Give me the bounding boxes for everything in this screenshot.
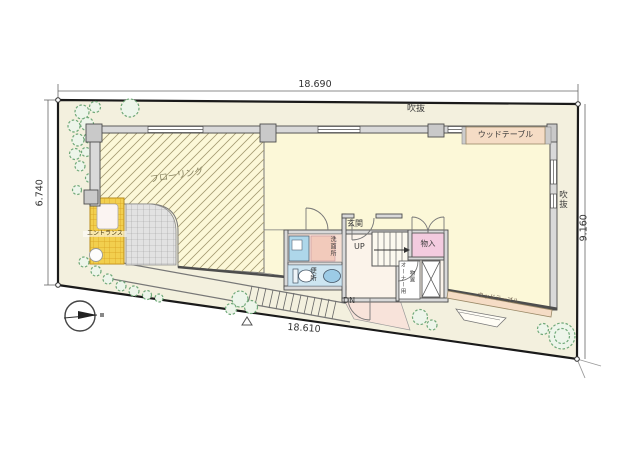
toilet-label: 便所 xyxy=(309,267,316,282)
stairs-up-label: UP xyxy=(354,243,365,251)
entrance-porch-label: エントランス xyxy=(83,231,127,237)
washroom-label: 洗面所 xyxy=(329,236,335,257)
wood-table-top-label: ウッドテーブル xyxy=(466,131,545,139)
stairs-down-label: DN xyxy=(343,297,355,305)
closet-label: 物入 xyxy=(412,240,444,248)
north-arrow-icon xyxy=(64,301,104,331)
basin xyxy=(324,270,341,283)
entrance-hall-label: 玄関 xyxy=(340,220,370,228)
dimension-top: 18.690 xyxy=(260,80,370,90)
void-label-top: 吹抜 xyxy=(396,105,436,114)
dimension-right: 9.160 xyxy=(579,198,589,258)
void-label-right: 吹抜 xyxy=(558,190,567,209)
owner-storage-label-2: 物置 xyxy=(408,270,414,283)
floor-plan-drawing xyxy=(0,0,624,454)
dimension-left: 6.740 xyxy=(35,163,45,223)
corridor-strip xyxy=(264,230,286,276)
owner-storage-label-1: オーナー用 xyxy=(399,262,405,295)
level-marker-triangle xyxy=(242,317,252,325)
floor-plan-canvas: 18.690 6.740 9.160 18.610 吹抜 吹抜 ウッドテーブル … xyxy=(0,0,624,454)
